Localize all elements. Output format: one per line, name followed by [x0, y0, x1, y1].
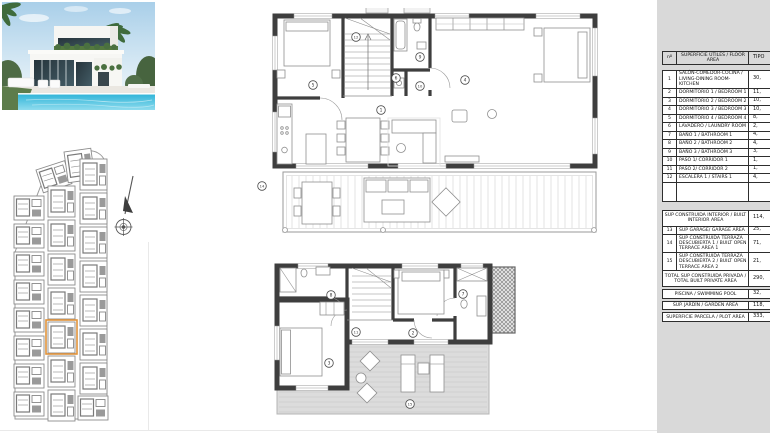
- area-table-row: 2DORMITORIO 1 / BEDROOM 111,: [662, 88, 770, 98]
- area-table-row: 6LAVADERO / LAUNDRY ROOM2,: [662, 122, 770, 132]
- site-units: [14, 148, 108, 421]
- svg-text:7: 7: [462, 292, 465, 298]
- svg-text:14: 14: [260, 185, 265, 189]
- area-table-row: 4DORMITORIO 3 / BEDROOM 310,: [662, 105, 770, 115]
- svg-text:4: 4: [464, 78, 467, 84]
- sheet-divider-horizontal: [0, 430, 657, 431]
- table-row-pool: PISCINA / SWIMMING POOL 32,: [662, 289, 770, 299]
- area-table-row: 3DORMITORIO 2 / BEDROOM 210,: [662, 97, 770, 107]
- svg-text:1: 1: [380, 108, 383, 114]
- upper-terrace: [283, 172, 597, 232]
- svg-text:15: 15: [408, 403, 413, 407]
- table-row-plot: SUPERFICIE PARCELA / PLOT AREA 333,: [662, 312, 770, 322]
- villa-photo: [2, 2, 155, 110]
- area-table-panel: nº SUPERFICIE ÚTILES / FLOOR AREA TIPO 1…: [657, 0, 770, 433]
- plan-sheet: 51296104114: [0, 0, 770, 433]
- svg-text:8: 8: [330, 293, 333, 299]
- svg-text:9: 9: [419, 55, 422, 61]
- upper-floor-plan-art: 51296104114: [250, 8, 610, 240]
- area-table-row: 12ESCALERA 1 / STAIRS 14,: [662, 173, 770, 183]
- area-table-row: 1SALÓN-COMEDOR-COCINA / LIVING-DINING RO…: [662, 70, 770, 89]
- area-table-row: 13SUP GARAGE/ GARAGE AREA25,: [662, 226, 770, 236]
- bedroom-1-furniture: [394, 270, 449, 314]
- area-table-row: [662, 182, 770, 202]
- lower-floor-plan: 87112315: [250, 258, 610, 428]
- area-table-header: nº SUPERFICIE ÚTILES / FLOOR AREA TIPO: [662, 51, 770, 65]
- svg-text:2: 2: [412, 331, 415, 337]
- lower-floor-plan-art: 87112315: [250, 258, 610, 428]
- site-plan: [5, 145, 150, 433]
- area-table-rows-useful: 1SALÓN-COMEDOR-COCINA / LIVING-DINING RO…: [662, 70, 770, 202]
- area-table: nº SUPERFICIE ÚTILES / FLOOR AREA TIPO 1…: [662, 52, 770, 322]
- col-header-number: nº: [663, 52, 677, 64]
- svg-text:12: 12: [354, 36, 359, 40]
- col-header-tipo: TIPO: [749, 52, 770, 64]
- svg-text:11: 11: [354, 331, 359, 335]
- area-table-row: 8BAÑO 2 / BATHROOM 24,: [662, 139, 770, 149]
- area-table-row: 9BAÑO 3 / BATHROOM 33,: [662, 148, 770, 158]
- table-row-garden: SUP. JARDÍN / GARDEN AREA 118,: [662, 301, 770, 311]
- table-band-interior: SUP CONSTRUIDA INTERIOR / BUILT INTERIOR…: [662, 210, 770, 227]
- area-table-row: 10PASO 1/ CORRIDOR 11,: [662, 156, 770, 166]
- area-table-row: 15SUP CONSTRUIDA TERRAZA DESCUBIERTA 2 /…: [662, 252, 770, 271]
- sheet-divider-vertical: [148, 242, 149, 431]
- area-table-row: 11PASO 2/ CORRIDOR 21,: [662, 165, 770, 175]
- area-table-row: 5DORMITORIO 4 / BEDROOM 48,: [662, 114, 770, 124]
- site-plan-art: [5, 145, 150, 433]
- svg-text:10: 10: [418, 85, 423, 89]
- area-table-row: 7BAÑO 1 / BATHROOM 14,: [662, 131, 770, 141]
- villa-photo-art: [2, 2, 155, 110]
- svg-text:6: 6: [395, 76, 398, 82]
- north-arrow-icon: [115, 176, 134, 236]
- upper-floor-plan: 51296104114: [250, 8, 610, 240]
- svg-text:5: 5: [312, 83, 315, 89]
- svg-text:3: 3: [328, 361, 331, 367]
- col-header-floor-area: SUPERFICIE ÚTILES / FLOOR AREA: [677, 52, 749, 64]
- area-table-row: 14SUP CONSTRUIDA TERRAZA DESCUBIERTA 1 /…: [662, 234, 770, 253]
- table-band-total: TOTAL SUP CONSTRUIDA PRIVADA / TOTAL BUI…: [662, 270, 770, 287]
- area-table-rows-built: 13SUP GARAGE/ GARAGE AREA25,14SUP CONSTR…: [662, 226, 770, 272]
